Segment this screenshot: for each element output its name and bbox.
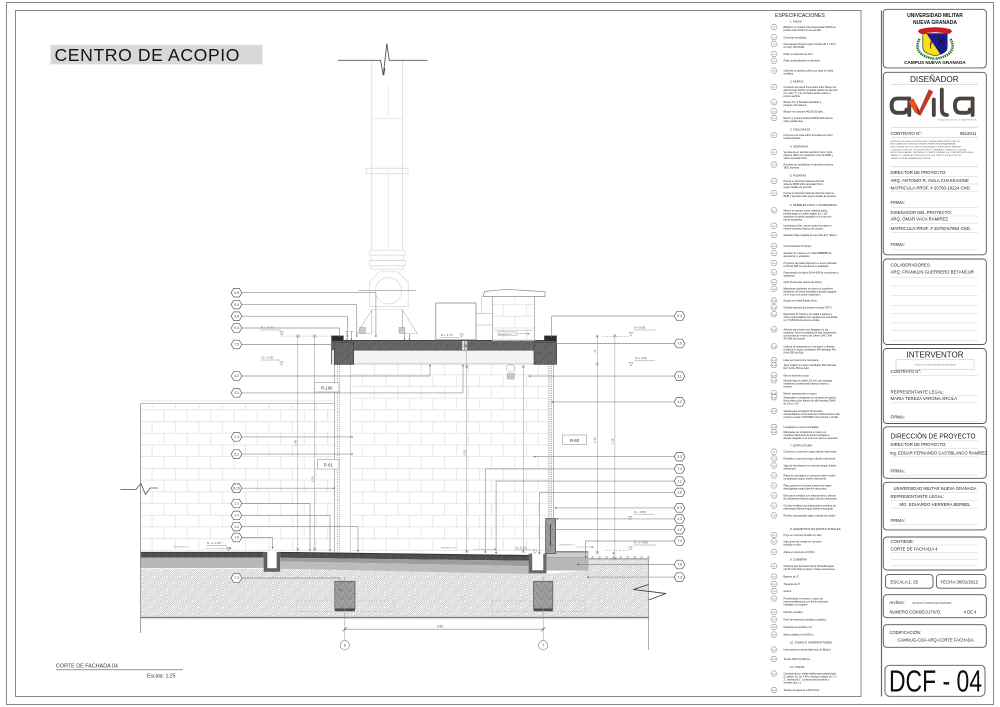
svg-text:6.5: 6.5 [234,291,239,295]
svg-text:Win de aluminio crudo: Win de aluminio crudo [784,373,810,377]
svg-text:PENDIENTE 2%: PENDIENTE 2% [441,547,457,549]
svg-text:ACUSTICA, GRADAS, VESTIERES Y: ACUSTICA, GRADAS, VESTIERES Y CUARTO DE … [891,151,975,154]
svg-text:4 DE 4: 4 DE 4 [964,609,977,614]
svg-text:CORTE DE FACHADA 04: CORTE DE FACHADA 04 [56,664,118,670]
svg-text:5. PUERTAS: 5. PUERTAS [790,173,806,177]
svg-text:Manto asfaltico e=0.005 m: Manto asfaltico e=0.005 m [784,633,814,637]
svg-text:Breather 1.5: Breather 1.5 [499,333,511,336]
svg-text:perno expansivo.: perno expansivo. [784,217,804,221]
svg-text:N + 0.55: N + 0.55 [634,510,646,514]
svg-text:ESTUDIOS DE SUELOS, ESTUDIOS Y: ESTUDIOS DE SUELOS, ESTUDIOS Y DISEÑOS A… [891,140,961,143]
svg-text:Poyo en concreto fundido en si: Poyo en concreto fundido en sitio. [784,533,823,537]
svg-text:en el muro con perno expansivo: en el muro con perno expansivo. [784,293,821,297]
svg-text:7.3: 7.3 [677,575,682,579]
svg-text:7.8: 7.8 [677,563,682,567]
svg-text:Ing. EDGAR FERNANDO CASTIBLANC: Ing. EDGAR FERNANDO CASTIBLANCO RAMÍREZ [890,451,988,456]
svg-text:7.5: 7.5 [677,342,682,346]
svg-text:Orinal Grival E.P. blanco.: Orinal Grival E.P. blanco. [784,244,813,248]
svg-text:1: 25: 1: 25 [909,580,919,585]
svg-text:ELECTRICAS, DE VOZ, DATOS, SEG: ELECTRICAS, DE VOZ, DATOS, SEGURIDAD Y E… [891,146,962,149]
svg-text:acabados.: acabados. [784,273,796,277]
svg-text:Pantalla en concreto segun dis: Pantalla en concreto segun diseño estruc… [784,457,837,461]
svg-text:CAMPUS NUEVA GRANADA: CAMPUS NUEVA GRANADA [904,60,966,65]
svg-text:4.2: 4.2 [234,374,239,378]
svg-text:8.15: 8.15 [233,486,240,490]
svg-text:presión modelo 17010099 marca: presión modelo 17010099 marca Docol o si… [784,415,839,419]
svg-text:FIRMA:: FIRMA: [891,518,906,523]
svg-text:1.6: 1.6 [234,536,239,540]
svg-text:arquitectura e ingeniería: arquitectura e ingeniería [938,118,977,122]
svg-text:NUMERO CONSECUTIVO:: NUMERO CONSECUTIVO: [890,609,942,614]
svg-text:1.2: 1.2 [234,525,239,529]
svg-text:1.1: 1.1 [234,502,239,506]
svg-text:REPRESENTANTE LEGAL:: REPRESENTANTE LEGAL: [891,390,945,395]
svg-text:6. MUEBLES FIJOS Y ACCESORIOS: 6. MUEBLES FIJOS Y ACCESORIOS [790,203,837,207]
svg-text:machiembrado.: machiembrado. [784,136,802,140]
svg-text:CONSTRUCCION DEL POLIDEPORTIVO: CONSTRUCCION DEL POLIDEPORTIVO Y GIMNASI… [891,148,967,151]
svg-text:8038 y persiana total según d: 8038 y persiana total según detalle de p… [784,194,837,198]
svg-text:REPRESENTANTE LEGAL:: REPRESENTANTE LEGAL: [891,494,945,499]
svg-text:UM-34-DT-CORTES DE FACHADA: UM-34-DT-CORTES DE FACHADA [912,602,952,605]
svg-text:5.2: 5.2 [234,452,239,456]
svg-text:MATRICULA:: MATRICULA: [891,186,917,191]
svg-text:Tomas GFCI de Bticino.: Tomas GFCI de Bticino. [784,657,811,661]
svg-text:9-AA-330 de A&A.: 9-AA-330 de A&A. [784,350,805,354]
svg-text:N + 3.70: N + 3.70 [441,333,453,337]
svg-text:AC-954 de bruseal: AC-954 de bruseal [784,336,806,340]
svg-text:poliuretano blanca segun diseñ: poliuretano blanca segun diseño estructu… [784,507,834,511]
svg-text:6: 6 [344,644,346,648]
svg-text:CONTRATO N°:: CONTRATO N°: [891,131,923,136]
svg-text:DIRECTOR DE PROYECTO:: DIRECTOR DE PROYECTO: [891,170,947,175]
svg-text:dovela cargada en el muro con: dovela cargada en el muro con perno expa… [784,436,839,440]
svg-text:P-01: P-01 [324,462,334,467]
svg-text:metálica.: metálica. [784,72,794,76]
svg-text:FIRMA:: FIRMA: [891,200,906,205]
svg-text:R-160: R-160 [321,385,333,390]
svg-text:PROF. # 25700-19224 CND.: PROF. # 25700-19224 CND. [917,185,971,190]
svg-text:Pirlán antideslizante en alumi: Pirlán antideslizante en aluminio. [784,59,822,63]
svg-text:1.1: 1.1 [677,479,682,483]
svg-text:ref. 70x52x04 de grival o simi: ref. 70x52x04 de grival o similar. [784,318,821,322]
svg-text:PROF. # 25700-57854 CND.: PROF. # 25700-57854 CND. [917,226,971,231]
svg-text:de 0.9 a 1.40: de 0.9 a 1.40 [784,401,799,405]
svg-text:Bajante de 3".: Bajante de 3". [784,575,800,579]
svg-text:fundida en sitio.: fundida en sitio. [784,543,802,547]
svg-text:N + 3.30: N + 3.30 [635,356,647,360]
svg-text:30/01/2012: 30/01/2012 [957,580,979,585]
svg-text:1.40: 1.40 [294,440,298,446]
svg-text:CABRILLO Y PARA LA CONSTRUCCIO: CABRILLO Y PARA LA CONSTRUCCION DEL CENT… [891,154,963,157]
svg-text:Escala: 1:25: Escala: 1:25 [147,673,176,679]
svg-text:MG. EDUARDO HERRERA BERBEL: MG. EDUARDO HERRERA BERBEL [900,502,972,507]
svg-text:7: 7 [542,644,544,648]
svg-text:2.3: 2.3 [677,455,682,459]
svg-text:Archivo:: Archivo: [890,600,905,605]
svg-text:N +3.60: N +3.60 [634,326,645,330]
svg-text:Sanitario Tasa colgada al muro: Sanitario Tasa colgada al muro Era E.P. … [784,233,838,237]
svg-text:DISEÑADOR DEL PROYECTO:: DISEÑADOR DEL PROYECTO: [891,210,952,215]
svg-text:2.30: 2.30 [310,476,314,482]
svg-text:CODIFICACIÓN:: CODIFICACIÓN: [890,630,922,635]
svg-text:perlato claro fondo crema de a: perlato claro fondo crema de alfa. [784,28,822,32]
svg-text:2.73: 2.73 [593,437,597,443]
svg-text:Llave terminal como manguera.: Llave terminal como manguera. [784,358,820,362]
svg-text:Ref. 9-AA-700 de A&A.: Ref. 9-AA-700 de A&A. [784,366,810,370]
svg-text:según detalle de puertas.: según detalle de puertas. [784,185,813,189]
svg-text:compactado segun diseño estruc: compactado segun diseño estructural. [784,477,827,481]
svg-text:3.90: 3.90 [437,624,443,628]
svg-text:ref B-AA-845 de accesorios y a: ref B-AA-845 de accesorios y acabados. [784,264,830,268]
svg-text:Traganta de 3".: Traganta de 3". [784,582,802,586]
svg-text:PENDIENTE 2%: PENDIENTE 2% [559,545,575,547]
svg-text:Espejo en cristal flotado 6mm.: Espejo en cristal flotado 6mm. [784,299,818,303]
svg-text:vidrio templado 5mm.: vidrio templado 5mm. [784,156,809,160]
svg-text:3831 alumina.: 3831 alumina. [784,166,800,170]
svg-text:2.3: 2.3 [234,435,239,439]
svg-text:3.18: 3.18 [611,438,615,444]
svg-text:DIRECTOR DE PROYECTO:: DIRECTOR DE PROYECTO: [891,442,947,447]
svg-text:Atipia en concreto e=0.05m: Atipia en concreto e=0.05m [784,550,815,554]
svg-text:FECHA:: FECHA: [941,580,957,585]
svg-text:DISEÑADOR: DISEÑADOR [910,74,959,84]
svg-text:INTERVENTOR: INTERVENTOR [906,350,963,359]
svg-text:MARIA TEREZA VARONA ARCILA: MARIA TEREZA VARONA ARCILA [891,396,958,401]
svg-text:pintura acrilica.: pintura acrilica. [784,94,801,98]
svg-text:cm Ref. 36714391.: cm Ref. 36714391. [784,45,806,49]
svg-text:Griferia sanitaria fluxometro: Griferia sanitaria fluxometro manual TOT… [784,305,833,309]
svg-text:5.3: 5.3 [234,303,239,307]
svg-text:NUEVA GRANADA: NUEVA GRANADA [913,20,957,26]
svg-text:CORTE DE FACHADA 4: CORTE DE FACHADA 4 [891,546,939,551]
svg-text:Poliestireno extruido e=1": Poliestireno extruido e=1" [784,625,813,629]
svg-text:8.3: 8.3 [677,506,682,510]
svg-text:N + 3.30: N + 3.30 [262,356,274,360]
svg-text:ARQ. FRANKLIN GUERRERO BETANCU: ARQ. FRANKLIN GUERRERO BETANCUR [891,270,974,275]
svg-text:UNIVERSIDAD MILITAR NUEVA GRAN: UNIVERSIDAD MILITAR NUEVA GRANADA [894,486,977,491]
svg-text:9. CUBIERTA: 9. CUBIERTA [790,558,807,562]
svg-text:4.2: 4.2 [677,400,682,404]
svg-text:1. PISOS: 1. PISOS [790,20,802,24]
svg-text:ARQ. ANTONIO R. AVILA CHASSAIG: ARQ. ANTONIO R. AVILA CHASSAIGNE [891,178,970,183]
svg-text:Interruptores y tomas light-te: Interruptores y tomas light-tech de Btic… [784,648,832,652]
svg-text:Columna en concreto segun dise: Columna en concreto segun diseño estruct… [784,450,838,454]
svg-text:ESCALA:: ESCALA: [891,580,909,585]
svg-text:Perfil de transición metálico: Perfil de transición metálico o plástico [784,618,827,622]
svg-text:3.30: 3.30 [463,450,467,456]
svg-text:7.5: 7.5 [234,343,239,347]
svg-text:esmalte tipo 1.): esmalte tipo 1.) [784,681,802,685]
svg-text:1.2: 1.2 [677,528,682,532]
svg-text:9.8: 9.8 [234,314,239,318]
svg-text:CONTIENE:: CONTIENE: [891,539,914,544]
svg-text:Mesón superpuesto en acero: Mesón superpuesto en acero [784,391,818,395]
svg-text:PENDIENTE 2%: PENDIENTE 2% [174,546,190,548]
svg-text:BIOCLIMATICOS, ESTRUCTURALES,: BIOCLIMATICOS, ESTRUCTURALES, REDES HIDR… [891,143,957,146]
svg-text:2. MUROS: 2. MUROS [790,80,804,84]
svg-text:Flanche metalico: Flanche metalico [784,610,804,614]
svg-text:CAMPUS NUEVA GRANADA EN CAJICA: CAMPUS NUEVA GRANADA EN CAJICA. [891,157,932,160]
svg-text:7. ESTRUCTURA: 7. ESTRUCTURA [790,444,812,448]
svg-text:Cemento esmaltado.: Cemento esmaltado. [784,35,808,39]
svg-text:Grifo Pressmatic deluxe de Doc: Grifo Pressmatic deluxe de Docol. [784,280,823,284]
svg-text:CENTRO DE ACOPIO: CENTRO DE ACOPIO [55,45,241,65]
svg-text:cal.26 color blanco opaco. In: cal.26 color blanco opaco. Incluye acces… [784,567,836,571]
svg-text:descolgadas segun diseño estru: descolgadas segun diseño estructural. [784,487,828,491]
svg-text:accesorios y acabados.: accesorios y acabados. [784,254,811,258]
svg-text:Pirlán en aluminio de 2cm.: Pirlán en aluminio de 2cm. [784,52,814,56]
svg-text:instalado con soplete.: instalado con soplete. [784,603,809,607]
svg-text:1.4: 1.4 [234,514,239,518]
svg-text:Recebo compactado segun estudi: Recebo compactado segun estudio de suelo… [784,514,837,518]
svg-text:Tanque de agua de 2.000 Litros: Tanque de agua de 2.000 Litros [784,688,821,692]
svg-text:3. CIELO RASO: 3. CIELO RASO [790,128,811,132]
svg-text:7.3: 7.3 [234,576,239,580]
svg-text:10. TOMAS E INTERRUPTORES: 10. TOMAS E INTERRUPTORES [790,641,832,645]
svg-text:0912011: 0912011 [960,131,977,136]
svg-text:3.1: 3.1 [677,374,682,378]
svg-text:7.4: 7.4 [677,467,682,471]
svg-text:Bloque en concreto 40x20x10 sp: Bloque en concreto 40x20x10 split. [784,109,824,113]
svg-text:exterior: exterior [784,384,793,388]
svg-text:pintado color blanco.: pintado color blanco. [784,103,808,107]
svg-text:N +/- 0.00: N +/- 0.00 [207,541,221,545]
svg-text:CONTRATO N°:: CONTRATO N°: [891,369,922,374]
svg-text:FIRMA:: FIRMA: [891,242,906,247]
svg-text:meson-cerámico blanco de coron: meson-cerámico blanco de corona. [784,227,824,231]
svg-text:MATRICULA:: MATRICULA: [891,226,917,231]
svg-text:ESPECIFICACIONES: ESPECIFICACIONES [775,13,825,19]
svg-text:R-60: R-60 [570,438,580,443]
svg-text:ARQ. OMAR VACA RAMIREZ: ARQ. OMAR VACA RAMIREZ [891,217,949,222]
svg-text:sobre pañete liso.: sobre pañete liso. [784,119,804,123]
svg-text:FIRMA:: FIRMA: [891,414,906,419]
svg-text:1.6: 1.6 [677,491,682,495]
svg-text:11. OTROS: 11. OTROS [790,665,805,669]
svg-text:9.4: 9.4 [677,314,682,318]
svg-text:2.3: 2.3 [677,517,682,521]
svg-text:CAMNUG-CDA-ARQ-CORTE FACHADA: CAMNUG-CDA-ARQ-CORTE FACHADA [898,638,974,643]
svg-text:Gotero: Gotero [784,589,792,593]
svg-text:de poliuretano blanca segun di: de poliuretano blanca segun diseño estru… [784,497,838,501]
svg-text:8. ELEMENTOS NO ESTRUCTURALES: 8. ELEMENTOS NO ESTRUCTURALES [790,527,841,531]
svg-text:N - 0.10: N - 0.10 [515,546,526,550]
svg-text:3.1: 3.1 [234,391,239,395]
svg-text:Lavaplatos en acero inoxidable: Lavaplatos en acero inoxidable [784,425,820,429]
svg-text:FIRMA:: FIRMA: [891,468,906,473]
svg-text:DCF - 04: DCF - 04 [889,663,982,698]
svg-text:UNIVERSIDAD MILITAR: UNIVERSIDAD MILITAR [907,13,963,19]
svg-text:9.4: 9.4 [234,326,239,330]
svg-text:7.4: 7.4 [677,539,682,543]
svg-text:estructural.: estructural. [784,467,797,471]
svg-text:4. VENTANAS: 4. VENTANAS [790,145,808,149]
svg-text:DIRECCIÓN DE PROYECTO: DIRECCIÓN DE PROYECTO [891,431,976,440]
svg-text:COLABORADORES:: COLABORADORES: [891,263,931,268]
